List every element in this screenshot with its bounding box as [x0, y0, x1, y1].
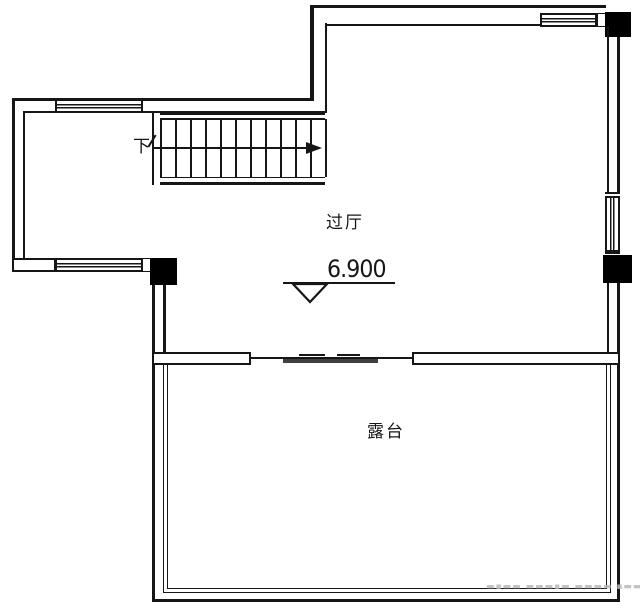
window-right-wall — [605, 196, 620, 252]
floor-plan: 下 过厅 6.900 露台 ▬▪▬▬ ▬▬▬▪▬ ▬▬▬▬ ▪▬▬ — [0, 0, 640, 614]
stair-top-stringer — [160, 113, 325, 120]
wall-right-inner-upper — [607, 26, 609, 192]
wall-top-left-inner — [325, 23, 327, 113]
stair-direction-label: 下 — [133, 139, 152, 156]
wall-bottom-right-segment — [412, 352, 620, 365]
wall-bottom-left-segment — [152, 352, 251, 365]
elevation-triangle-icon — [291, 283, 329, 304]
stair-bottom-stringer — [160, 177, 325, 185]
wall-top-inner — [325, 24, 540, 26]
stair-tread — [160, 119, 162, 177]
sliding-door-dash-1 — [299, 354, 325, 356]
column-left — [150, 258, 177, 285]
wall-wing-bottom — [12, 258, 56, 272]
wall-wing-left-inner — [23, 112, 25, 259]
wall-hall-left-outer — [152, 285, 155, 602]
wall-cap-above-window — [605, 192, 620, 194]
sliding-door-dash-2 — [337, 354, 360, 356]
column-right — [603, 255, 632, 283]
wall-wing-top-inner — [23, 111, 55, 113]
elevation-value: 6.900 — [327, 257, 386, 281]
window-wing-bottom — [55, 258, 143, 272]
watermark: ▬▪▬▬ ▬▬▬▪▬ ▬▬▬▬ ▪▬▬ — [486, 582, 640, 592]
wall-wing-left-outer — [12, 98, 15, 272]
wall-cap-below-window — [605, 252, 620, 254]
stair-tread — [250, 119, 252, 177]
stair-tread — [265, 119, 267, 177]
stair-tread — [280, 119, 282, 177]
stair-left-edge — [152, 113, 154, 185]
window-wing-top — [55, 99, 143, 113]
terrace-label: 露台 — [367, 424, 405, 441]
stair-tread — [310, 119, 312, 177]
terrace-outer-bottom — [152, 599, 620, 602]
wall-right-outer-upper — [617, 37, 620, 192]
sliding-door-panel — [283, 359, 378, 363]
wall-top-left-outer — [310, 5, 314, 101]
stair-tread — [205, 119, 207, 177]
stair-tread — [175, 119, 177, 177]
stair-tread — [295, 119, 297, 177]
stair-arrow-head-icon — [306, 142, 322, 154]
wall-top-outer — [310, 5, 606, 8]
wall-right-outer-lower — [617, 283, 620, 602]
stair-tread — [325, 119, 327, 177]
stair-tread — [220, 119, 222, 177]
wall-right-inner-lower — [607, 283, 609, 352]
stair-tread — [235, 119, 237, 177]
hall-label: 过厅 — [326, 215, 364, 232]
stair-tread — [190, 119, 192, 177]
terrace-parapet-inner — [167, 365, 607, 589]
window-top-right — [540, 13, 597, 27]
wall-hall-left-inner — [163, 285, 166, 352]
